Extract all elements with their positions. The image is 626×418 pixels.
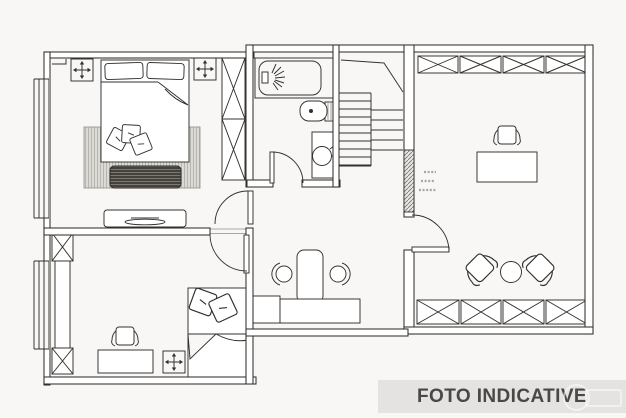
shower-head-icon	[262, 72, 268, 83]
single-bed	[188, 288, 248, 377]
dresser-tv	[104, 210, 186, 227]
wall-top-left	[44, 52, 254, 58]
floor-plan	[0, 0, 626, 418]
banner-label: FOTO INDICATIVE	[417, 386, 587, 408]
ceiling-light-symbol	[71, 59, 93, 81]
wardrobe-second	[52, 233, 73, 374]
wall-right	[585, 45, 593, 334]
wall-bottom-left	[44, 377, 256, 384]
foto-indicative-banner: FOTO INDICATIVE	[378, 380, 626, 413]
bed-pillow	[105, 62, 144, 79]
wall-office-west-lower	[404, 250, 414, 334]
wall-office-bottom	[404, 327, 593, 334]
wall-master-east	[246, 45, 253, 187]
wall-top-right	[250, 45, 593, 52]
watermark-rect-icon	[585, 389, 622, 407]
bed-pillow	[147, 62, 185, 79]
wall-bedrooms-divider	[44, 228, 210, 235]
desk-return	[297, 250, 323, 303]
round-table	[501, 262, 522, 283]
floor-plan-image: FOTO INDICATIVE	[0, 0, 626, 418]
desk-side	[252, 296, 280, 323]
wall-hatch-segment	[404, 150, 414, 212]
wall-bathroom-south-left	[247, 180, 273, 187]
window-second-bedroom	[33, 261, 50, 349]
toilet	[300, 101, 336, 121]
sink-vanity	[312, 132, 336, 178]
desk-second-bedroom	[98, 350, 153, 373]
ceiling-light-symbol	[163, 351, 185, 373]
office-desk	[477, 152, 537, 182]
wall-study-bottom	[246, 329, 408, 336]
ceiling-light-symbol	[194, 58, 216, 80]
wardrobe-master	[222, 58, 245, 180]
wall-bathroom-stairs-divider	[333, 45, 339, 187]
study-desk	[280, 299, 360, 323]
storage-bench	[110, 166, 181, 188]
window-master	[33, 79, 50, 218]
